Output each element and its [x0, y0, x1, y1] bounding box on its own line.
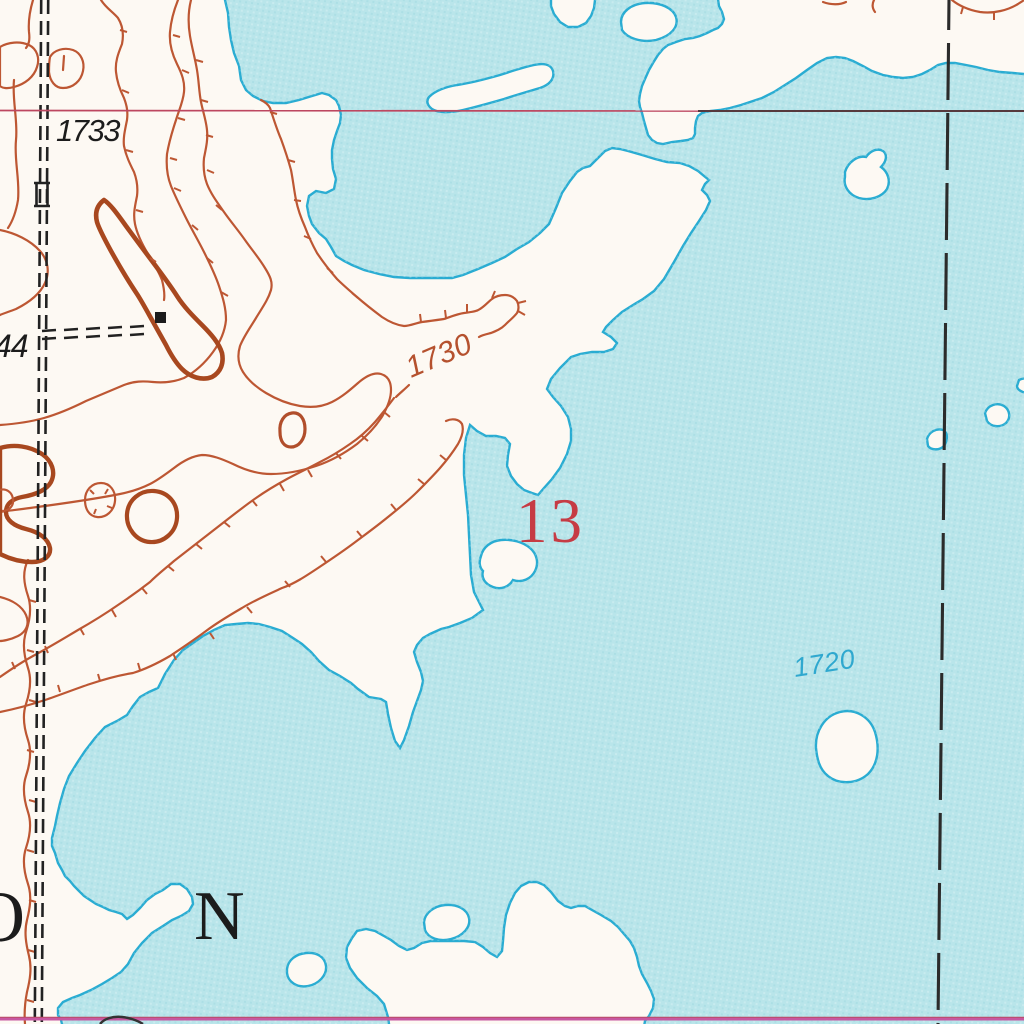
svg-text:44: 44	[0, 328, 28, 364]
svg-text:1733: 1733	[56, 113, 120, 148]
svg-text:O: O	[0, 877, 25, 957]
svg-text:13: 13	[516, 486, 585, 556]
svg-text:N: N	[194, 878, 245, 955]
